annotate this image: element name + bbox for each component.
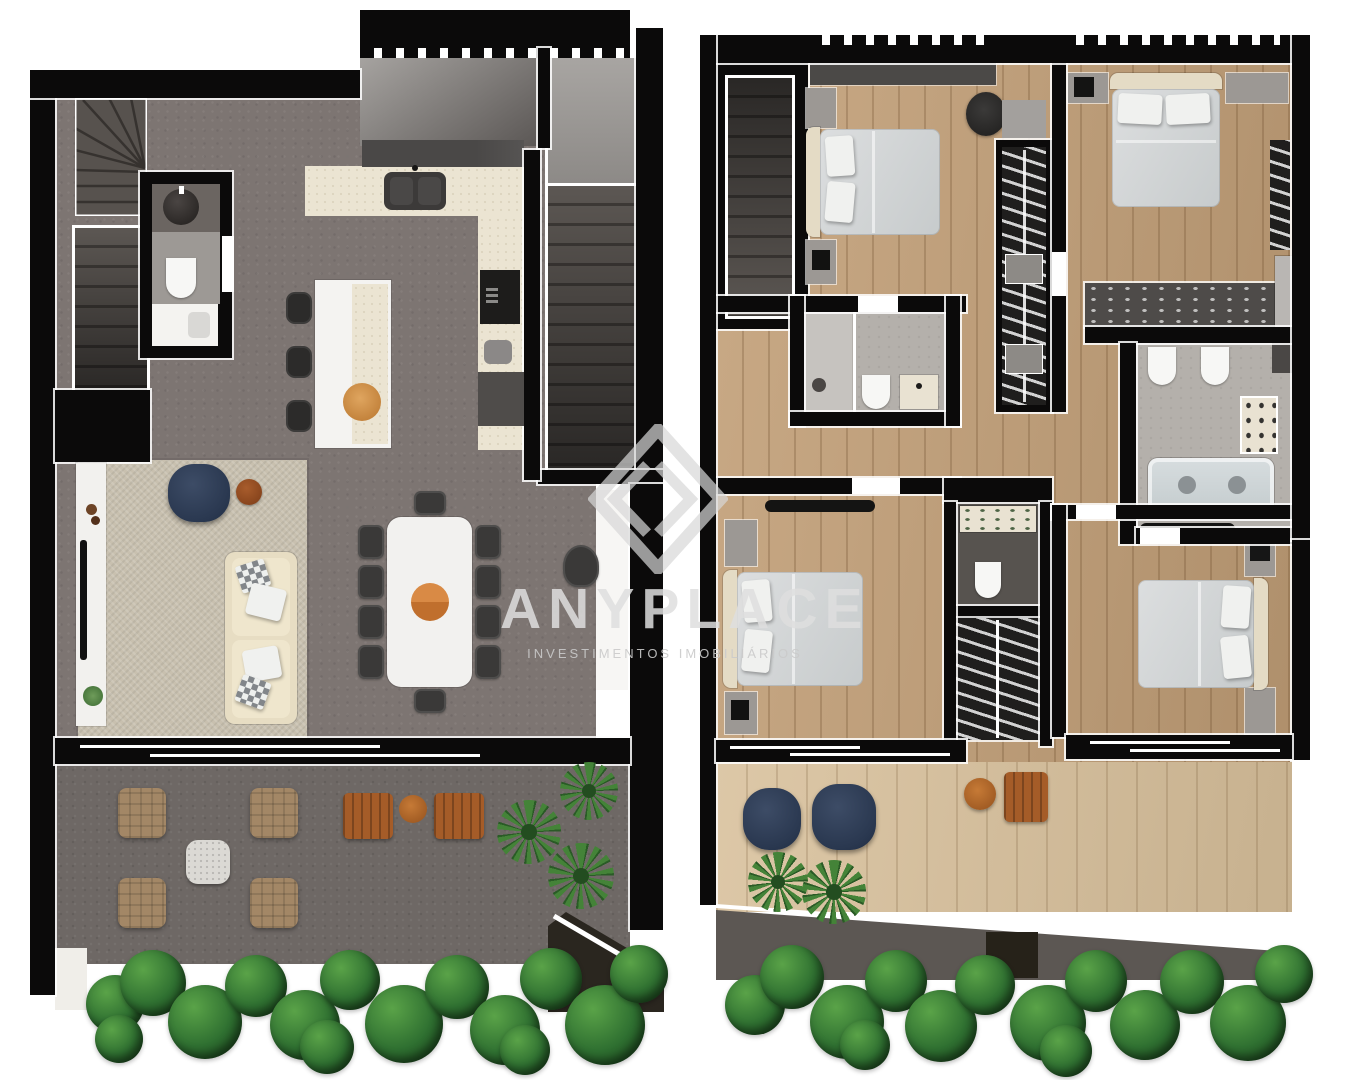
watermark: ANYPLACE INVESTIMENTOS IMOBILIÁRIOS bbox=[0, 0, 1350, 1080]
floorplan-canvas: ANYPLACE INVESTIMENTOS IMOBILIÁRIOS bbox=[0, 0, 1350, 1080]
watermark-subtitle: INVESTIMENTOS IMOBILIÁRIOS bbox=[505, 646, 825, 661]
anyplace-logo-icon bbox=[588, 424, 728, 574]
watermark-title: ANYPLACE bbox=[500, 576, 860, 642]
